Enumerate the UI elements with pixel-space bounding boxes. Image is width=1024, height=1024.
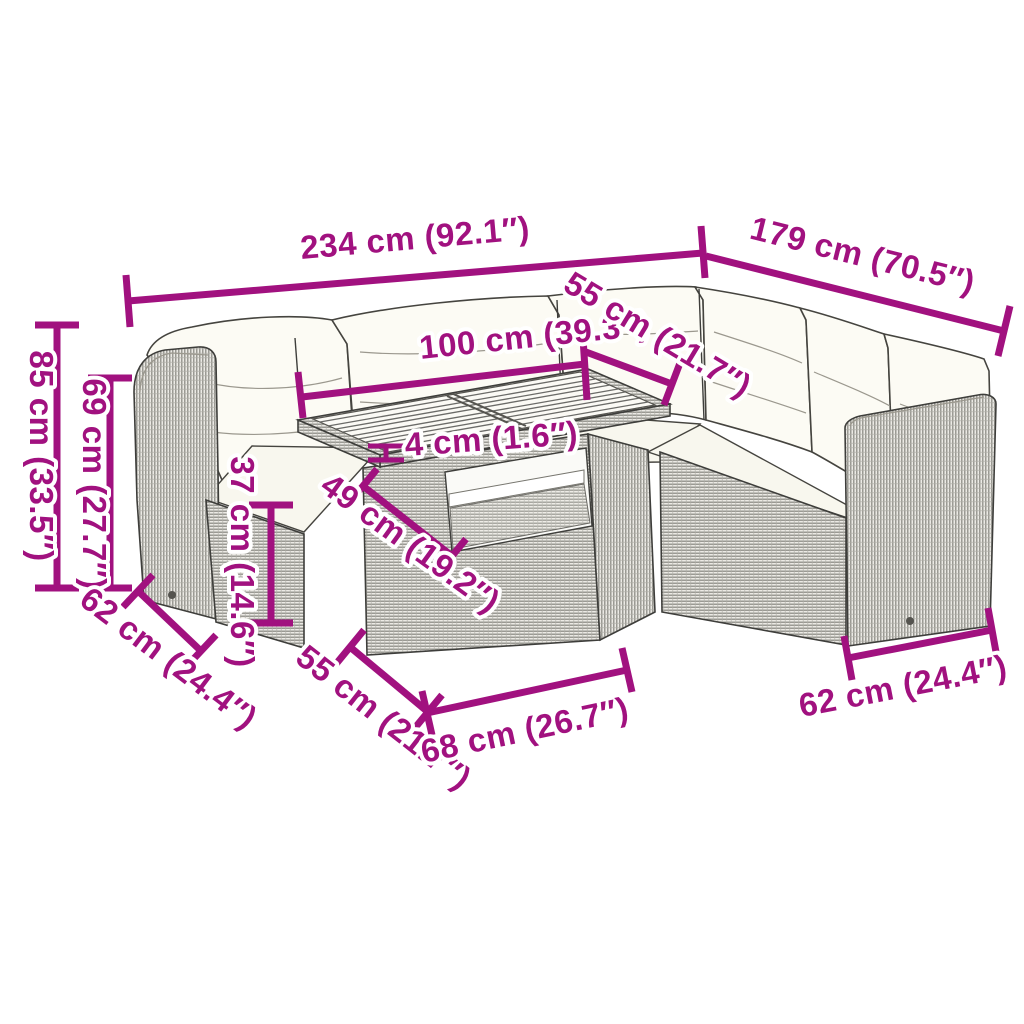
table-base-side <box>588 434 655 640</box>
dim-label-table-front-width: 68 cm (26.7″) <box>417 690 631 770</box>
dim-back-height: 85 cm (33.5″) <box>23 325 79 588</box>
dim-table-depth-bottom: 55 cm (21.7″) <box>289 630 478 797</box>
frame-rivet <box>906 617 914 625</box>
dim-label-armrest-height: 69 cm (27.7″) <box>76 378 113 589</box>
dim-label-overall-depth: 179 cm (70.5″) <box>747 209 979 301</box>
dim-label-seat-height: 37 cm (14.6″) <box>224 456 261 667</box>
diagram-canvas: 234 cm (92.1″) 179 cm (70.5″) 100 cm (39… <box>0 0 1024 1024</box>
dim-label-table-depth-bottom: 55 cm (21.7″) <box>289 637 478 796</box>
dim-label-seat-depth-right: 62 cm (24.4″) <box>796 647 1010 724</box>
frame-rivet <box>168 591 176 599</box>
furniture-dimension-diagram: 234 cm (92.1″) 179 cm (70.5″) 100 cm (39… <box>0 0 1024 1024</box>
right-armrest <box>845 394 996 646</box>
dim-label-overall-width: 234 cm (92.1″) <box>299 209 531 266</box>
dim-label-back-height: 85 cm (33.5″) <box>23 350 60 561</box>
dim-table-front-width: 68 cm (26.7″) <box>417 648 632 770</box>
dim-armrest-height: 69 cm (27.7″) <box>76 378 132 590</box>
